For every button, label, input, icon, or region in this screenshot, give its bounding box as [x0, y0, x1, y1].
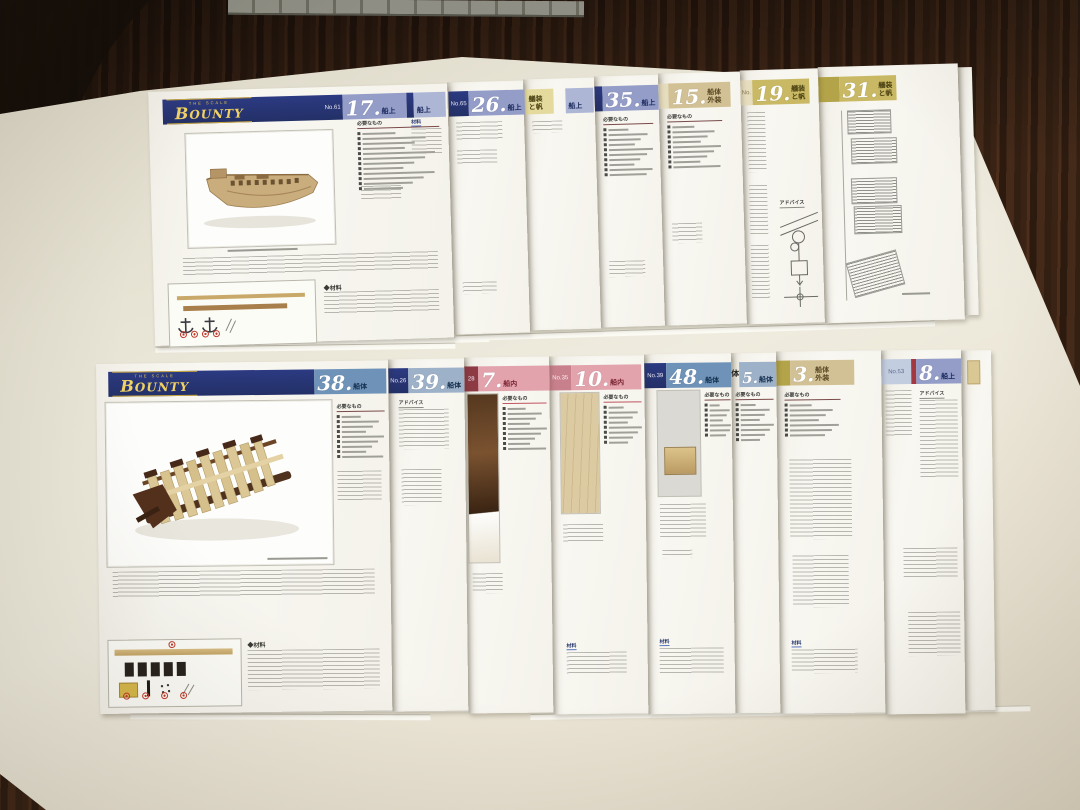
column-text	[563, 524, 603, 542]
column-text	[789, 459, 852, 540]
column-text	[463, 281, 497, 294]
guide-page-8: No.53 8. 船上 アドバイス	[881, 349, 965, 714]
step-tab: 38. 船体	[314, 368, 386, 394]
needed-items-heading: 必要なもの	[735, 391, 773, 400]
list-line	[337, 453, 385, 459]
list-line	[785, 432, 841, 438]
needed-items-heading: 必要なもの	[784, 391, 840, 401]
ratline-diagram	[851, 137, 898, 164]
header-band	[658, 83, 669, 108]
page-header: 35. 船上	[594, 85, 659, 112]
step-category: 船体	[705, 377, 719, 386]
materials-box	[168, 279, 318, 347]
grating-diagram	[846, 249, 906, 298]
parts-label-column	[751, 245, 771, 300]
header-band: No.26	[388, 368, 408, 393]
list-line	[503, 445, 547, 451]
black-parts-row	[125, 662, 186, 677]
intro-paragraph	[113, 569, 375, 598]
header-band: 28	[464, 366, 478, 391]
step-category: 船内	[503, 381, 517, 390]
peek-tab: 船上	[413, 92, 446, 118]
needed-items-heading: 必要なもの	[667, 112, 722, 123]
page-header: 28 7. 船内	[464, 365, 549, 391]
page-header: No.39 48. 船体	[644, 362, 731, 388]
column-text	[672, 223, 703, 244]
radiator-grill	[228, 0, 584, 17]
issue-number: No.61	[323, 104, 343, 111]
list-line	[604, 439, 642, 444]
header-band: THE SCALE BOUNTY No.61	[162, 95, 343, 125]
list-line	[668, 163, 723, 170]
wood-strip-part	[183, 303, 287, 311]
photo-scene: THE SCALE BOUNTY No.61 17. 船上 船上	[0, 0, 1080, 810]
step-category: 船体	[759, 376, 773, 385]
needed-items-rows	[736, 402, 774, 442]
page-header: No.35 10. 船内	[549, 364, 641, 390]
paragraph-text	[908, 611, 961, 656]
needed-items-heading: 必要なもの	[603, 115, 653, 125]
sheet-edge	[130, 713, 430, 720]
step-number: 31.	[842, 82, 877, 100]
materials-col-heading: 材料	[791, 639, 801, 647]
issue-number: 28	[466, 376, 477, 382]
list-line	[705, 432, 731, 437]
needed-items-rows	[667, 123, 723, 170]
ratline-diagram	[854, 205, 903, 234]
issue-number: No.39	[645, 373, 665, 379]
needed-items-heading: 必要なもの	[704, 391, 730, 400]
advice-text	[920, 399, 959, 477]
part-number-markers	[180, 324, 224, 343]
logo-bounty: BOUNTY	[120, 378, 189, 395]
top-page-row: THE SCALE BOUNTY No.61 17. 船上 船上	[148, 63, 986, 371]
ratline-diagram	[851, 177, 898, 204]
guide-page-31: 31. 艤装と帆	[818, 63, 965, 323]
step-number: 10.	[574, 371, 609, 388]
needed-items-list: 必要なもの	[667, 112, 724, 170]
column-text	[457, 149, 497, 164]
step-tab: 15. 船体外装	[668, 82, 731, 109]
step-tab: 7. 船内	[478, 365, 549, 391]
step-category: 艤装と帆	[878, 83, 893, 99]
bottom-page-row: THE SCALE BOUNTY 38. 船体	[96, 349, 1031, 760]
list-line	[605, 171, 655, 177]
header-band: No.35	[549, 365, 571, 390]
needed-items-list: 必要なもの	[704, 391, 731, 437]
column-text	[337, 471, 381, 502]
needed-items-list: 必要なもの	[603, 393, 642, 444]
step-number: 38.	[317, 375, 352, 392]
needed-items-list: 必要なもの	[337, 402, 386, 459]
column-text	[401, 469, 441, 505]
page-header: THE SCALE BOUNTY 38. 船体	[108, 368, 386, 396]
wood-strip-part	[177, 293, 305, 301]
column-text	[456, 121, 502, 140]
issue-number: No.53	[886, 369, 906, 375]
column-text	[885, 390, 912, 436]
assembly-photo	[656, 390, 701, 498]
guide-page-7: 28 7. 船内 必要なもの	[464, 356, 553, 713]
deck-photo-strip	[559, 392, 600, 514]
step-tab: 3. 船体外装	[790, 360, 854, 386]
hull-frame-photo	[105, 399, 335, 568]
page-header: No.53 8. 船上	[881, 358, 961, 384]
guide-page-19: No. 19. 艤装と帆 アドバイス	[740, 68, 825, 324]
needed-items-heading: 必要なもの	[603, 393, 641, 402]
column-text	[792, 555, 849, 608]
column-text	[660, 504, 706, 539]
column-text	[609, 260, 645, 277]
note-text	[361, 185, 401, 200]
step-number: 8.	[919, 365, 940, 382]
step-tab: 35. 船上	[602, 85, 659, 112]
guide-page-26: No.65 26. 船上	[447, 81, 530, 335]
materials-list-text	[248, 649, 380, 691]
diagram-caption	[902, 292, 930, 295]
step-number: 26.	[471, 96, 506, 114]
intro-paragraph	[183, 251, 438, 276]
needed-items-rows	[705, 402, 731, 437]
step-category: 船体	[353, 383, 367, 392]
bounty-logo: THE SCALE BOUNTY	[166, 97, 252, 124]
step-number: 15.	[671, 88, 706, 106]
step-number: 3.	[793, 366, 814, 383]
guide-page-10: No.35 10. 船内 必要なもの 材料	[549, 355, 648, 714]
ship-model-photo	[184, 129, 336, 249]
step-number: 7.	[481, 372, 502, 389]
sheet-under-edge	[961, 350, 995, 710]
materials-list-text	[324, 289, 440, 314]
step-category: 船上	[641, 99, 655, 108]
category-label: 艤装と帆	[528, 96, 543, 112]
peek-category: 船上	[568, 103, 582, 112]
step-category: 船上	[382, 108, 396, 117]
deck-structure	[664, 447, 696, 475]
step-tab: 19. 艤装と帆	[752, 79, 809, 106]
materials-col-text	[567, 652, 627, 675]
step-category: 船内	[610, 379, 624, 388]
advice-heading: アドバイス	[779, 199, 804, 209]
peek-tab: 船上	[565, 88, 594, 114]
guide-page-48: No.39 48. 船体 必要なもの 材料	[644, 353, 735, 714]
partial-category-text: 体	[731, 370, 739, 379]
guide-page-17: THE SCALE BOUNTY No.61 17. 船上 船上	[148, 84, 454, 346]
materials-col-text	[411, 128, 442, 155]
guide-page-15: 15. 船体外装 必要なもの	[658, 71, 747, 325]
caption-text	[662, 550, 692, 558]
page-header: 艤装と帆 船上	[525, 88, 594, 115]
column-text	[473, 573, 503, 593]
step-category: 船上	[941, 373, 955, 382]
paragraph-text	[903, 547, 957, 578]
step-number: 19.	[755, 85, 790, 103]
step-tab: 26. 船上	[468, 90, 524, 117]
diagram-guide-line	[841, 111, 847, 301]
deck-beam-part	[115, 648, 233, 655]
page-header: No.65 26. 船上	[448, 90, 524, 117]
materials-col-heading: 材料	[411, 118, 421, 126]
step-category: 艤装と帆	[791, 86, 806, 102]
hull-model-illustration	[185, 130, 333, 246]
step-category: 船体	[447, 382, 461, 391]
guide-page-3: 3. 船体外装 必要なもの 材料	[776, 350, 885, 713]
header-band: No.53	[881, 359, 911, 384]
materials-box	[107, 638, 242, 708]
ratline-diagram	[847, 109, 892, 134]
advice-heading: アドバイス	[399, 399, 424, 408]
materials-col-heading: 材料	[566, 642, 576, 650]
step-number: 5.	[742, 372, 758, 385]
page-header: No.26 39. 船体	[388, 368, 464, 394]
step-number: 35.	[605, 91, 640, 109]
issue-number: No.65	[449, 101, 469, 108]
category-tab: 艤装と帆	[525, 89, 554, 115]
step-tab: 17. 船上	[342, 93, 407, 120]
guide-page-hidden: 艤装と帆 船上	[523, 78, 601, 331]
column-text	[532, 120, 562, 133]
issue-number: No.35	[550, 375, 570, 381]
guide-page-35: 35. 船上 必要なもの	[594, 75, 665, 328]
header-band: THE SCALE BOUNTY	[108, 369, 314, 397]
header-band: No.	[740, 80, 753, 105]
needed-items-list: 必要なもの	[735, 391, 774, 442]
page-header: No. 19. 艤装と帆	[740, 79, 807, 106]
parts-label-column	[747, 112, 767, 172]
needed-items-heading: 必要なもの	[502, 394, 546, 404]
header-band: No.65	[448, 91, 469, 117]
step-tab: 5. 船体	[739, 362, 776, 387]
logo-bounty: BOUNTY	[175, 104, 244, 122]
block-tackle-sketch	[778, 208, 823, 314]
step-tab: 31. 艤装と帆	[839, 75, 896, 102]
advice-heading: アドバイス	[919, 390, 944, 399]
issue-number: No.26	[388, 378, 408, 384]
needed-items-list: 必要なもの	[502, 394, 547, 451]
step-tab: 10. 船内	[571, 364, 641, 390]
needed-items-list: 必要なもの	[603, 115, 655, 177]
issue-number: No.	[740, 90, 754, 96]
header-band	[776, 361, 790, 386]
guide-page-38: THE SCALE BOUNTY 38. 船体	[96, 360, 392, 714]
page-header: 31. 艤装と帆	[818, 75, 897, 102]
step-number: 39.	[411, 374, 446, 391]
step-category: 船体外装	[707, 89, 722, 105]
needed-items-rows	[604, 404, 642, 444]
step-number: 48.	[669, 369, 704, 386]
part-number-markers	[123, 686, 191, 705]
advice-text	[399, 409, 449, 450]
needed-items-rows	[337, 413, 386, 459]
materials-col-heading: 材料	[659, 638, 669, 646]
header-band: No.39	[644, 363, 666, 388]
materials-heading: ◆材料	[247, 640, 265, 649]
peek-category: 船上	[417, 107, 431, 116]
step-category: 船体外装	[815, 367, 830, 383]
step-number: 17.	[345, 100, 380, 118]
part-photo-strip	[466, 393, 500, 563]
guide-page-39: No.26 39. 船体 アドバイス	[388, 359, 468, 712]
step-tab: 39. 船体	[408, 368, 464, 394]
step-tab: 48. 船体	[666, 362, 731, 388]
page-header: 3. 船体外装	[776, 360, 854, 386]
needed-items-list: 必要なもの	[784, 391, 841, 438]
needed-items-rows	[785, 402, 841, 438]
page-header: 体 5. 船体	[731, 362, 776, 388]
needed-items-rows	[503, 405, 548, 451]
step-tab: 8. 船上	[916, 358, 961, 384]
materials-col-text	[792, 649, 858, 674]
guide-page-5: 体 5. 船体 必要なもの	[731, 353, 780, 714]
list-line	[736, 437, 774, 442]
needed-items-heading: 必要なもの	[337, 402, 385, 412]
step-category: 船上	[507, 104, 521, 113]
page-header: 15. 船体外装	[658, 82, 731, 109]
header-band	[818, 77, 840, 103]
hull-skeleton-illustration	[106, 400, 332, 565]
needed-items-rows	[603, 126, 654, 177]
parts-label-column	[749, 185, 768, 235]
peek-tab	[967, 360, 980, 384]
materials-col-text	[660, 647, 724, 674]
bounty-logo: THE SCALE BOUNTY	[112, 371, 197, 397]
